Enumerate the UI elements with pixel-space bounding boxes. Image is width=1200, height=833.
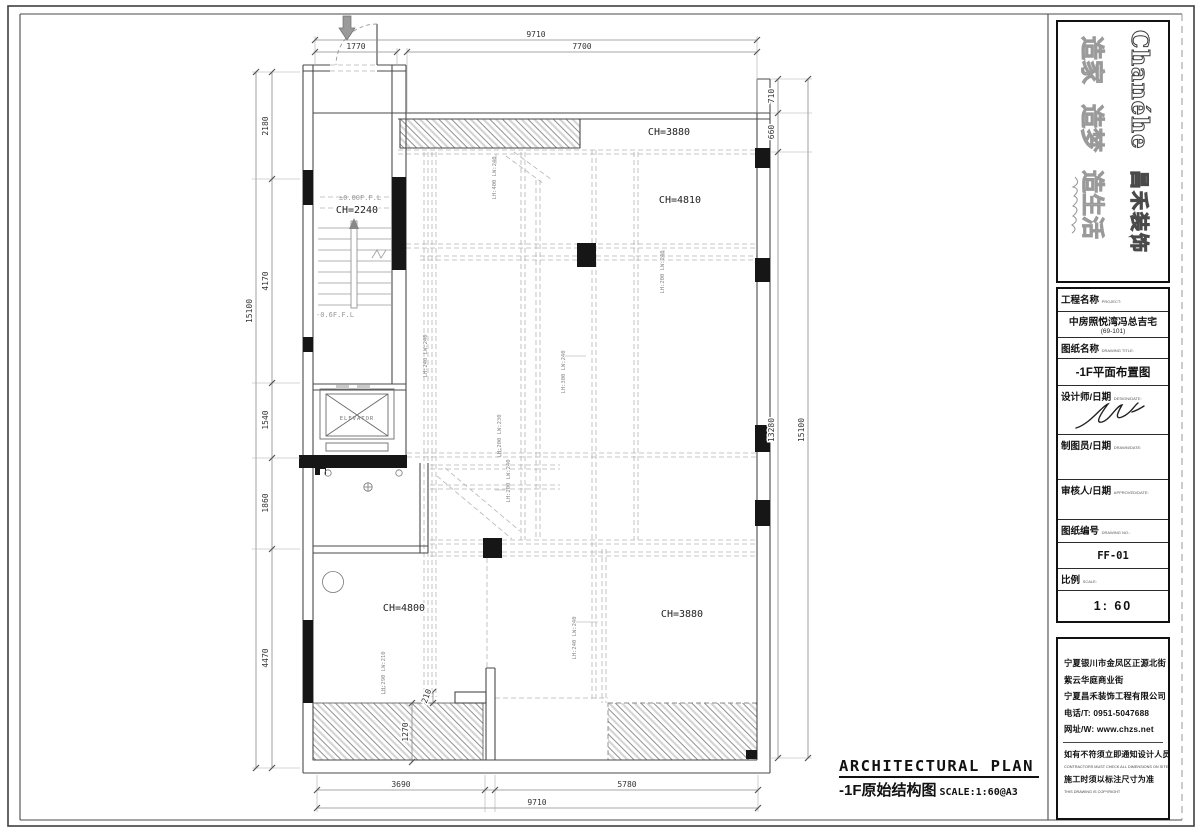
note-1-cn: 如有不符须立即通知设计人员 [1064,749,1162,760]
brand-name-cn: 昌禾装饰 [1127,170,1154,254]
slogan-3: 造生活 [1078,170,1112,239]
number-label: 图纸编号 [1061,526,1099,537]
dim-top-right: 7700 [572,42,591,51]
company-name: 宁夏昌禾装饰工程有限公司 [1064,690,1162,702]
beam-tag: LH:200 LW:240 [506,459,512,502]
column-circle [323,572,344,593]
beam-tag: LH:300 LW:240 [561,350,567,393]
number-value-row: FF-01 [1058,543,1168,569]
designer-row: 设计师/日期 DESIGN/DATE: [1058,386,1168,435]
beam-tag: LH:240 LW:240 [423,334,429,377]
beam-tag: LH:240 LW:240 [572,616,578,659]
label-elevator: ELEVATOR [340,416,375,422]
scale-label-en: SCALE: [1083,579,1097,584]
note-2-en: THIS DRAWING IS COPYRIGHT [1064,790,1162,794]
dim-bottom-1: 3690 [391,780,410,789]
scale-label-row: 比例 SCALE: [1058,569,1168,591]
sheet-frame [8,6,1194,826]
drafter-label: 制图员/日期 [1061,441,1111,452]
project-name: 中房照悦湾冯总吉宅 [1069,314,1157,328]
scale-value-row: 1: 60 [1058,591,1168,621]
drawing-name-row: -1F平面布置图 [1058,359,1168,386]
floor-drains [323,470,403,593]
dimension-lines [252,36,812,812]
project-label: 工程名称 [1061,295,1099,306]
plan-scale-note: SCALE:1:60@A3 [940,787,1018,798]
dim-left-overall: 15100 [245,299,254,323]
floor-plan-canvas: 9710 1770 7700 2180 4170 1540 1860 4470 … [0,0,1200,833]
drawing-number: FF-01 [1097,550,1129,562]
plan-title-block: ARCHITECTURAL PLAN -1F原始结构图 SCALE:1:60@A… [839,757,1039,800]
bottom-right-hatch [608,703,757,760]
dim-left-2: 4170 [261,271,270,290]
beam-leaders [385,154,664,694]
elevator-door-left [336,385,349,389]
beam-tag: LH:200 LW:230 [497,414,503,457]
drawing-name: -1F平面布置图 [1076,364,1151,380]
label-right-room-ch: CH=3880 [661,609,703,620]
entry-arrow-icon [339,16,355,40]
entry-door [336,16,377,65]
top-wall-hatch [400,119,580,148]
divider [1063,742,1163,743]
label-entry-ch: CH=2240 [336,205,378,216]
number-label-en: DRAWING NO.: [1102,530,1131,535]
project-label-en: PROJECT: [1102,299,1121,304]
dim-left-5: 4470 [261,648,270,667]
drawing-sheet: 9710 1770 7700 2180 4170 1540 1860 4470 … [0,0,1200,833]
approver-label-en: APPROVED/DATE: [1114,490,1149,495]
label-left-room-ch: CH=4800 [383,603,425,614]
title-block: 工程名称 PROJECT: 中房照悦湾冯总吉宅 (69-101) 图纸名称 DR… [1056,287,1170,623]
dim-hatch-1270: 1270 [401,722,410,741]
project-number: (69-101) [1101,328,1126,335]
dim-top-overall: 9710 [526,30,545,39]
number-label-row: 图纸编号 DRAWING NO.: [1058,520,1168,543]
hatch-areas [313,119,757,760]
company-address-1: 宁夏银川市金凤区正源北街 [1064,657,1162,669]
stair-direction-arrow [349,218,359,229]
label-main-ch: CH=4810 [659,195,701,206]
beam-tag: LH:200 LW:240 [660,250,666,293]
beam-tag: LH:400 LW:240 [492,156,498,199]
dim-left-4: 1860 [261,493,270,512]
label-top-strip-ch: CH=3880 [648,127,690,138]
door-jamb-notch [320,469,325,475]
dim-bottom-overall: 9710 [527,798,546,807]
dim-right-overall: 15100 [797,418,806,442]
plan-title-en: ARCHITECTURAL PLAN [839,757,1039,778]
drawing-label-row: 图纸名称 DRAWING TITLE: [1058,338,1168,359]
dimension-ticks [253,37,811,811]
scale-value: 1: 60 [1094,599,1133,613]
company-website: 网址/W: www.chzs.net [1064,723,1162,735]
scale-label: 比例 [1061,575,1080,586]
company-phone: 电话/T: 0951-5047688 [1064,707,1162,719]
designer-signature [1072,398,1152,432]
dim-right-1: 710 [767,89,776,104]
drawing-label-en: DRAWING TITLE: [1102,348,1134,353]
elevator-door-right [357,385,370,389]
approver-label: 审核人/日期 [1061,486,1111,497]
staircase [318,218,392,308]
plan-title-cn: -1F原始结构图 [839,779,937,800]
drawing-label: 图纸名称 [1061,344,1099,355]
drafter-label-en: DRAWN/DATE: [1114,445,1142,450]
approver-row: 审核人/日期 APPROVED/DATE: [1058,480,1168,520]
drafter-row: 制图员/日期 DRAWN/DATE: [1058,435,1168,480]
dim-step-210: 210 [420,688,433,705]
plan-columns [299,148,770,759]
slogan-2: 造梦 [1077,104,1112,152]
note-2-cn: 施工时须以标注尺寸为准 [1064,774,1162,785]
dim-right-3: 13280 [767,418,776,442]
brand-logo: Chanéhe [1126,30,1153,172]
dim-top-left: 1770 [346,42,365,51]
company-box: 宁夏银川市金凤区正源北街 紫云华庭商业街 宁夏昌禾装饰工程有限公司 电话/T: … [1056,637,1170,820]
project-label-row: 工程名称 PROJECT: [1058,289,1168,312]
company-address-2: 紫云华庭商业街 [1064,674,1162,686]
dim-left-1: 2180 [261,116,270,135]
label-lower-level: -0.6F.F.L [316,311,354,319]
beam-tag: LH:290 LW:210 [381,651,387,694]
dim-right-2: 660 [767,125,776,140]
note-1-en: CONTRACTORS MUST CHECK ALL DIMENSIONS ON… [1064,765,1162,769]
dim-left-3: 1540 [261,410,270,429]
slogan-1: 造家 [1077,36,1112,84]
dim-bottom-2: 5780 [617,780,636,789]
bottom-left-hatch [313,703,483,760]
label-entry-level: ±0.00F.F.L [339,194,381,202]
project-name-row: 中房照悦湾冯总吉宅 (69-101) [1058,312,1168,338]
